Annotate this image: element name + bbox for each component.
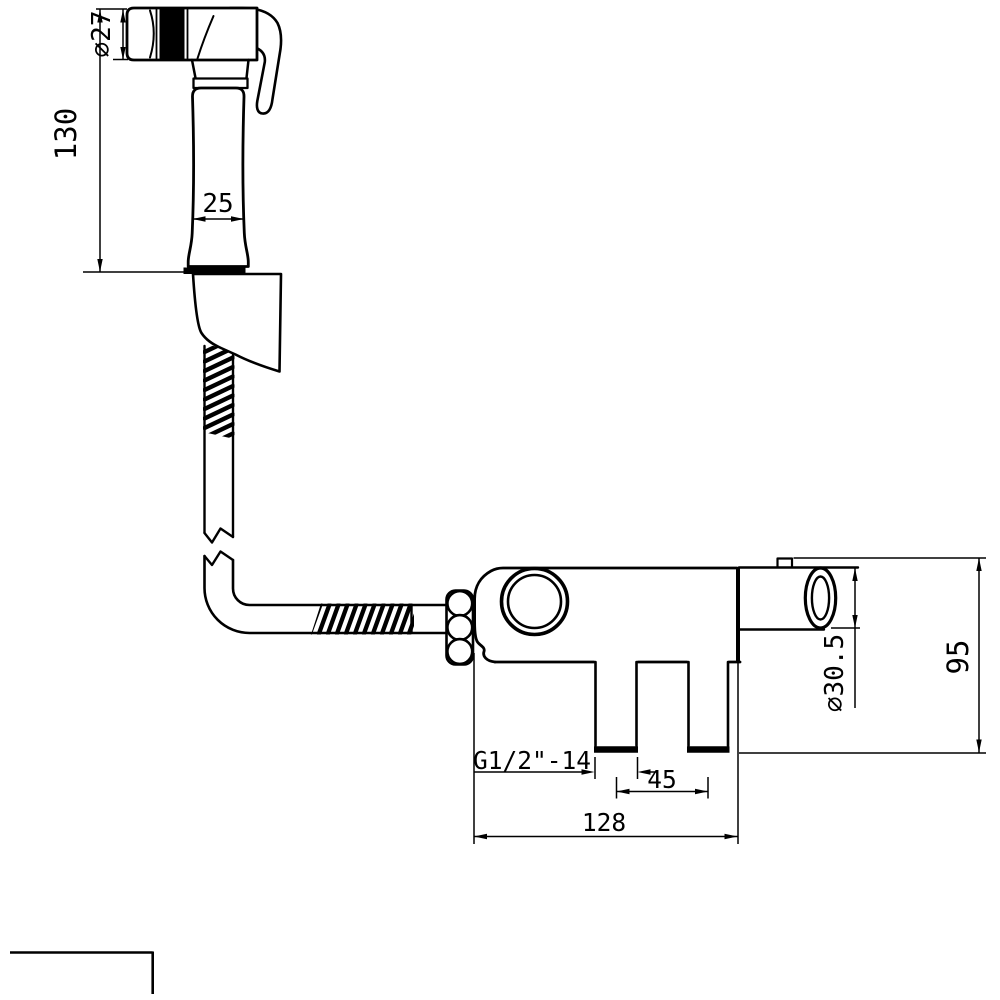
neck — [192, 60, 249, 78]
wall-bracket — [193, 274, 281, 372]
dim-text-130: 130 — [49, 108, 83, 160]
dim-text-128: 128 — [582, 808, 626, 837]
dim-text-95: 95 — [941, 640, 975, 675]
dim-text-outlet-diameter: ⌀30.5 — [820, 634, 850, 712]
hose-break-lower — [205, 552, 234, 566]
drawing-sheet: 130 ⌀27 25 G1/2"-14 45 128 ⌀30.5 95 — [0, 0, 1000, 1000]
border-corner — [10, 952, 153, 995]
dim-text-head-diameter: ⌀27 — [87, 11, 117, 58]
spray-head — [127, 8, 257, 60]
dim-text-45: 45 — [647, 765, 677, 794]
coupling-nut — [447, 591, 474, 665]
collar — [194, 79, 248, 89]
sprayer-handset — [127, 8, 281, 271]
hose-vertical — [205, 339, 234, 543]
hose-horizontal-coil-hatch — [310, 605, 420, 634]
grip-handle — [188, 88, 248, 267]
control-knob-outer — [502, 569, 568, 635]
valve-body — [475, 559, 858, 750]
technical-drawing: 130 ⌀27 25 G1/2"-14 45 128 ⌀30.5 95 — [0, 0, 1000, 1000]
dim-text-25: 25 — [202, 189, 233, 219]
hose-break-upper — [205, 529, 234, 543]
hose-elbow-inner — [233, 560, 447, 605]
outlet-stop-tab — [778, 559, 793, 568]
outlet-pipe-walls — [739, 568, 858, 630]
inlet-leg-left — [596, 662, 637, 746]
spray-head-band — [160, 9, 185, 60]
hose-vertical-coil-hatch — [205, 339, 234, 448]
inlet-leg-right — [689, 662, 729, 746]
dim-text-thread: G1/2"-14 — [473, 746, 591, 775]
hose-lower — [205, 552, 447, 634]
